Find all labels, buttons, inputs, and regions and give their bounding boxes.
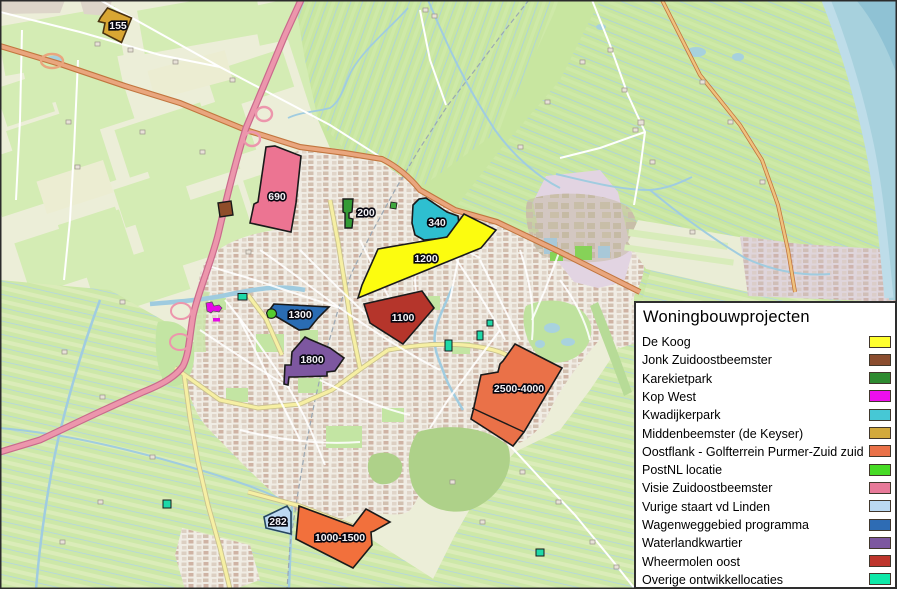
svg-text:1100: 1100 (392, 312, 415, 324)
svg-text:1300: 1300 (288, 309, 312, 321)
svg-text:200: 200 (357, 207, 375, 219)
svg-text:340: 340 (428, 217, 446, 229)
svg-text:1800: 1800 (300, 354, 324, 366)
svg-text:2500-4000: 2500-4000 (494, 383, 544, 395)
svg-text:690: 690 (268, 191, 286, 203)
svg-text:1200: 1200 (414, 253, 438, 265)
svg-text:155: 155 (109, 20, 127, 32)
svg-text:282: 282 (269, 516, 287, 528)
svg-text:1000-1500: 1000-1500 (315, 532, 365, 544)
